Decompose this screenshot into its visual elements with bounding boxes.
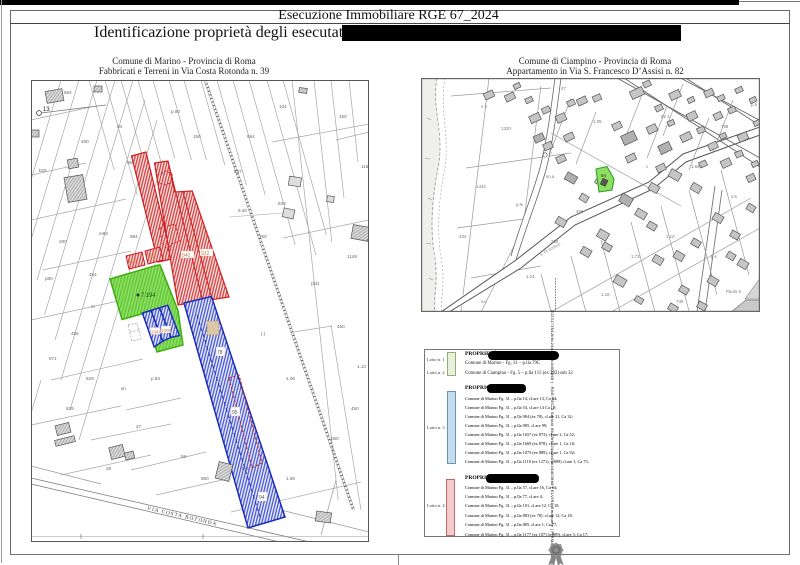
- svg-text:1148: 1148: [347, 254, 357, 259]
- svg-text:7 194: 7 194: [141, 293, 156, 299]
- svg-text:47: 47: [561, 86, 566, 91]
- svg-text:760: 760: [259, 234, 267, 239]
- svg-text:1.56: 1.56: [286, 476, 295, 481]
- svg-text:1.10: 1.10: [666, 234, 675, 239]
- svg-text:28: 28: [106, 466, 112, 471]
- svg-text:150: 150: [128, 259, 137, 265]
- svg-text:1.13: 1.13: [357, 364, 366, 369]
- svg-text:456: 456: [71, 331, 79, 336]
- svg-text:1.05: 1.05: [593, 119, 602, 124]
- svg-text:94: 94: [259, 495, 265, 501]
- svg-text:584: 584: [64, 90, 72, 95]
- svg-text:932: 932: [201, 251, 210, 257]
- svg-text:p.80: p.80: [171, 109, 180, 114]
- svg-text:794: 794: [241, 466, 249, 471]
- svg-text:94: 94: [601, 173, 607, 178]
- svg-text:Paolo 5: Paolo 5: [726, 289, 741, 294]
- svg-text:1220: 1220: [501, 126, 511, 131]
- svg-text:1.684: 1.684: [691, 164, 703, 169]
- svg-text:637: 637: [234, 169, 242, 174]
- svg-text:59: 59: [181, 454, 187, 459]
- svg-text:758: 758: [721, 124, 729, 129]
- svg-text:434: 434: [459, 234, 467, 239]
- svg-text:27: 27: [136, 424, 142, 429]
- svg-text:1.18: 1.18: [601, 292, 610, 297]
- svg-text:p.le: p.le: [516, 202, 524, 207]
- svg-text:1.24: 1.24: [526, 274, 535, 279]
- svg-text:843: 843: [278, 201, 286, 206]
- svg-text:m: m: [91, 304, 95, 309]
- svg-text:454: 454: [89, 272, 97, 277]
- svg-text:(84): (84): [311, 281, 320, 286]
- svg-text:b25: b25: [39, 168, 47, 173]
- svg-text:8.40: 8.40: [238, 208, 247, 213]
- svg-text:629: 629: [66, 406, 74, 411]
- svg-text:450: 450: [337, 324, 345, 329]
- svg-text:82 1: 82 1: [661, 114, 670, 119]
- svg-text:584: 584: [247, 134, 255, 139]
- svg-text:629: 629: [86, 376, 94, 381]
- svg-text:p.94: p.94: [151, 376, 160, 381]
- svg-text:1.73: 1.73: [631, 254, 640, 259]
- svg-text:450: 450: [351, 406, 359, 411]
- svg-text:s.n: s.n: [481, 299, 487, 304]
- svg-text:456: 456: [576, 209, 584, 214]
- svg-text:v 2: v 2: [481, 104, 487, 109]
- svg-text:D: D: [549, 150, 552, 155]
- svg-text:84: 84: [117, 124, 123, 129]
- svg-text:p.5: p.5: [751, 102, 758, 107]
- svg-text:95: 95: [232, 410, 238, 416]
- svg-text:p50: p50: [331, 436, 339, 441]
- svg-text:p80: p80: [45, 276, 53, 281]
- svg-text:104: 104: [279, 104, 287, 109]
- svg-text:290: 290: [59, 239, 67, 244]
- svg-text:s.5: s.5: [731, 194, 737, 199]
- svg-text:150: 150: [339, 114, 347, 119]
- svg-text:1085: 1085: [161, 328, 172, 333]
- svg-text:132: 132: [147, 254, 156, 260]
- svg-text:78: 78: [217, 350, 223, 356]
- svg-text:13: 13: [43, 107, 50, 113]
- svg-text:m84: m84: [99, 231, 108, 236]
- svg-text:860: 860: [201, 476, 209, 481]
- svg-text:p.s: p.s: [711, 254, 718, 259]
- svg-text:1154: 1154: [361, 164, 369, 169]
- svg-text:740: 740: [676, 299, 684, 304]
- svg-text:1444: 1444: [476, 184, 486, 189]
- svg-text:sn.a: sn.a: [546, 174, 555, 179]
- svg-text:940: 940: [182, 253, 191, 259]
- svg-text:(.): (.): [261, 331, 266, 336]
- svg-text:884: 884: [130, 234, 138, 239]
- svg-text:952: 952: [127, 160, 135, 165]
- svg-text:1.06: 1.06: [286, 376, 295, 381]
- svg-text:150: 150: [193, 134, 201, 139]
- svg-text:m: m: [161, 171, 165, 176]
- svg-text:sn: sn: [121, 386, 126, 391]
- svg-text:871: 871: [49, 356, 57, 361]
- svg-text:480: 480: [81, 139, 89, 144]
- svg-text:1084: 1084: [151, 330, 162, 335]
